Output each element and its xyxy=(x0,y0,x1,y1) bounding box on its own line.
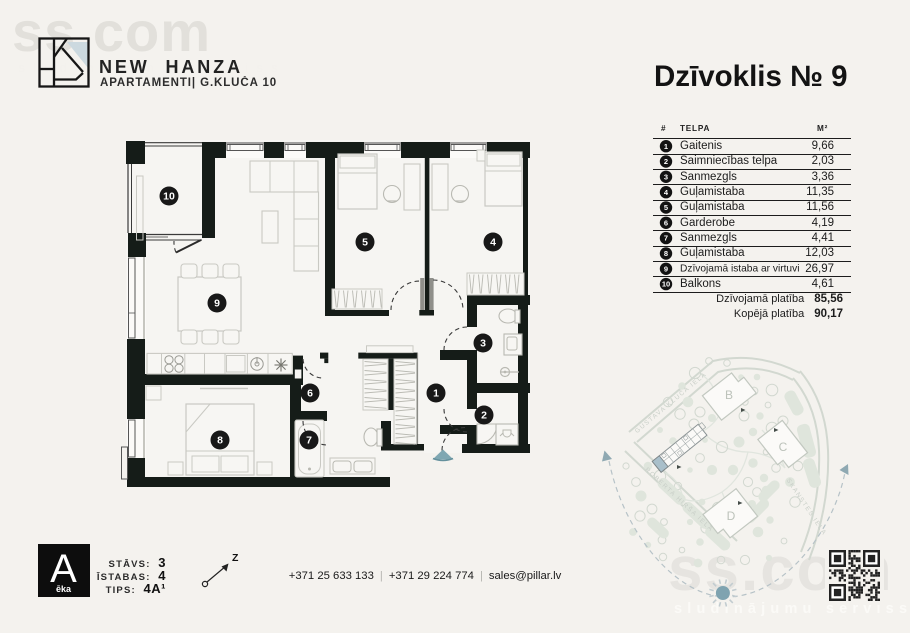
svg-text:10: 10 xyxy=(163,191,175,203)
svg-text:2: 2 xyxy=(481,410,487,422)
svg-text:C: C xyxy=(779,440,788,454)
svg-text:5: 5 xyxy=(362,237,368,249)
svg-text:7: 7 xyxy=(306,435,312,447)
svg-text:3: 3 xyxy=(480,338,486,350)
svg-text:1: 1 xyxy=(433,388,439,400)
svg-text:B: B xyxy=(725,388,733,402)
svg-text:4: 4 xyxy=(490,237,496,249)
svg-text:8: 8 xyxy=(217,435,223,447)
svg-text:9: 9 xyxy=(214,298,220,310)
svg-text:D: D xyxy=(727,509,736,523)
svg-text:SKANSTES IELA: SKANSTES IELA xyxy=(785,477,828,537)
svg-text:6: 6 xyxy=(307,388,313,400)
